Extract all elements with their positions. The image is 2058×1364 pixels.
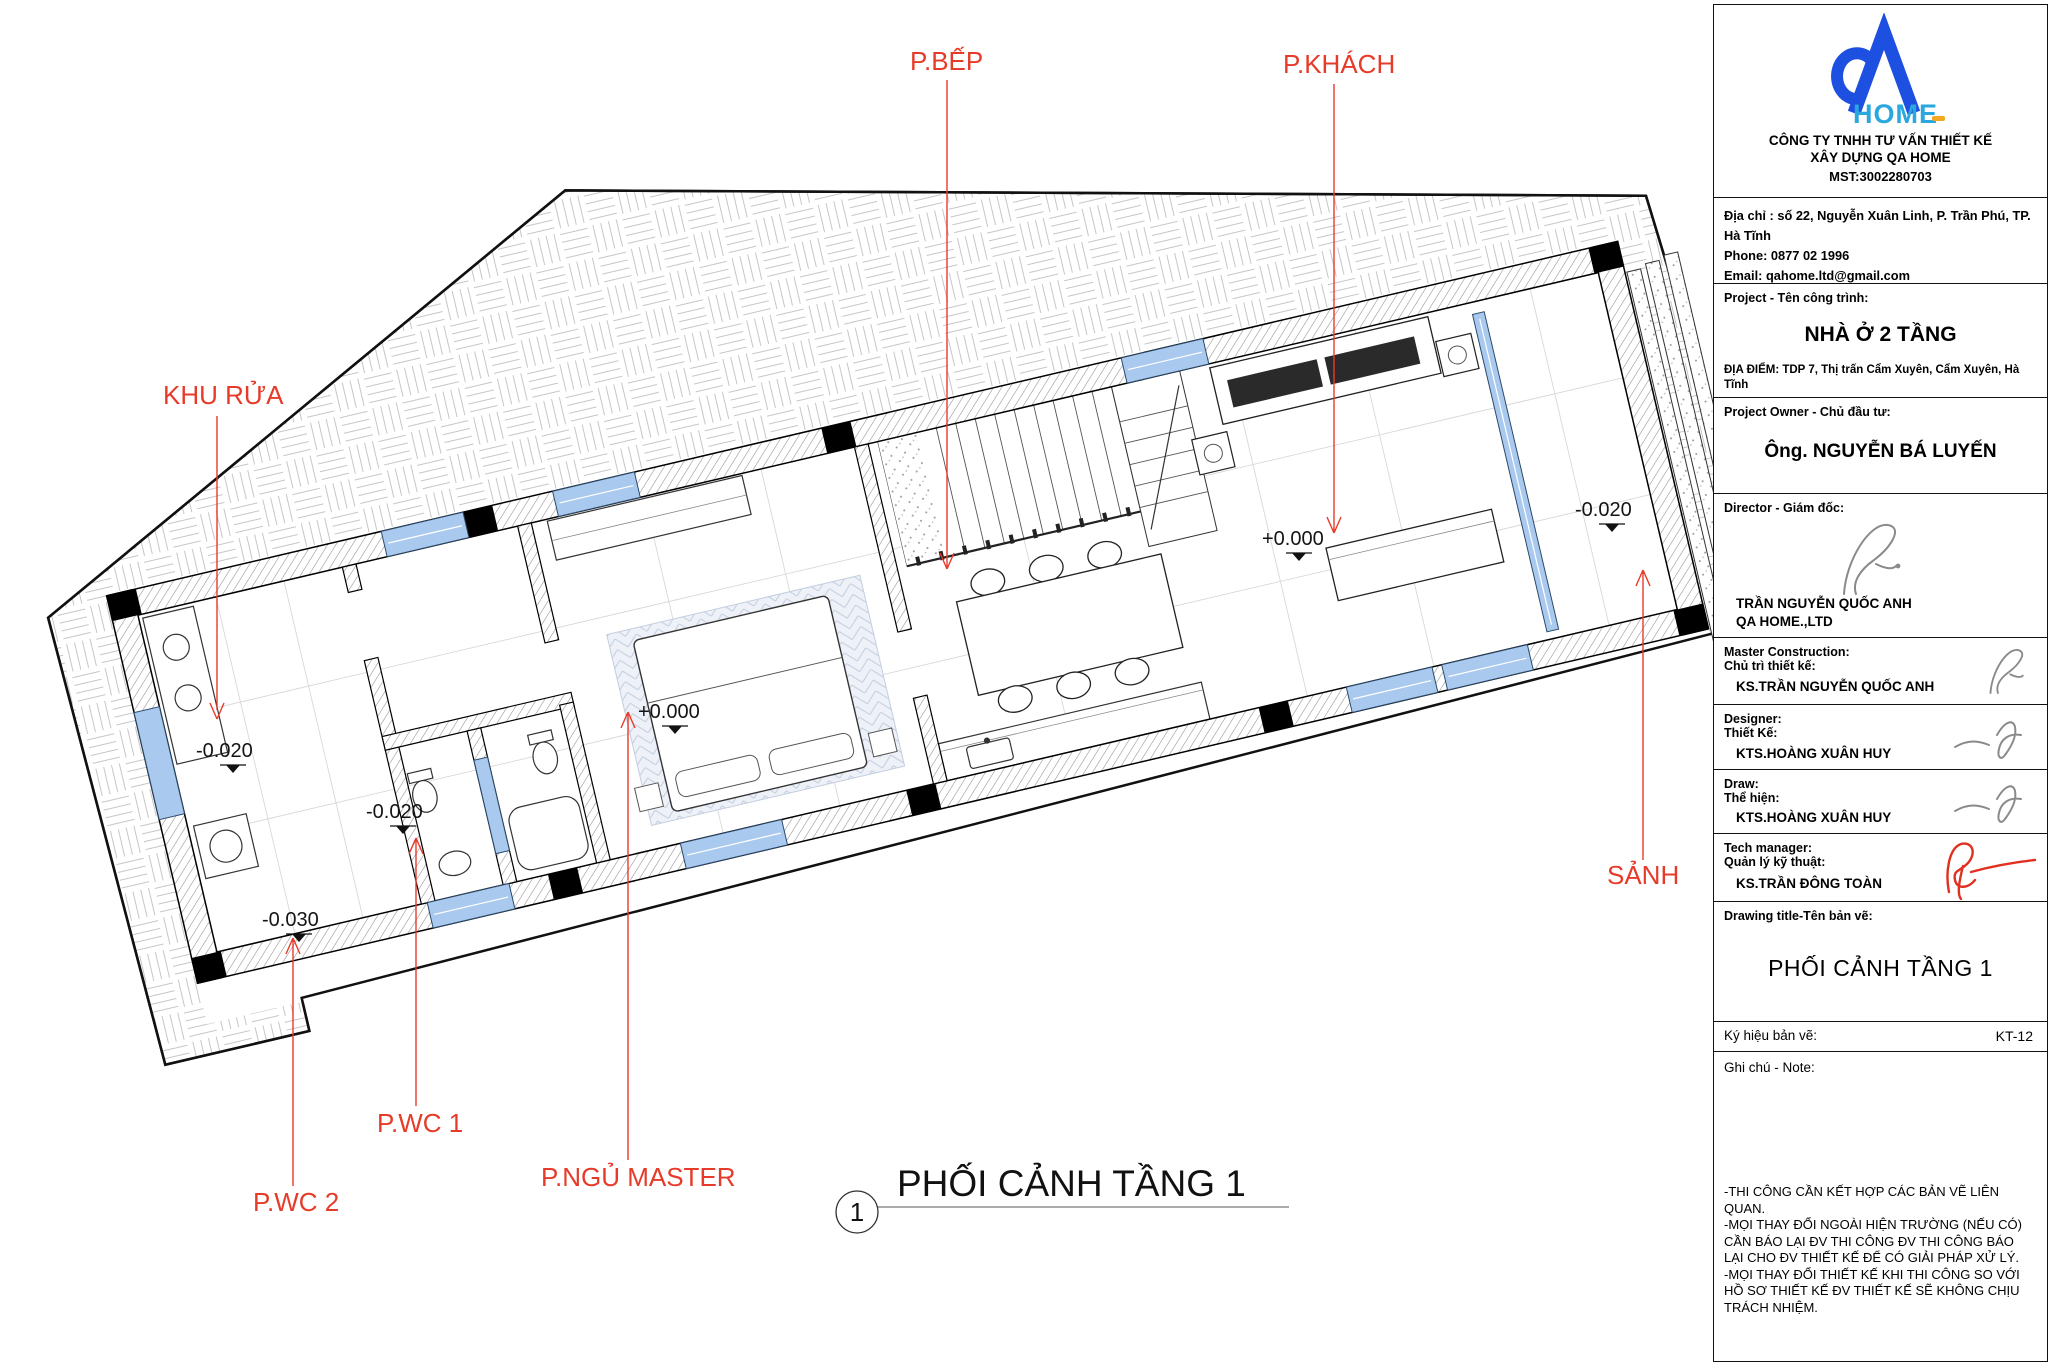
drawing-title-label: Drawing title-Tên bản vẽ: xyxy=(1714,902,2047,923)
room-label-p-bep: P.BẾP xyxy=(910,46,983,76)
draw-section: Draw: Thể hiện: KTS.HOÀNG XUÂN HUY xyxy=(1714,770,2047,834)
room-label-sanh: SẢNH xyxy=(1607,860,1679,890)
company-email: Email: qahome.ltd@gmail.com xyxy=(1724,268,1910,283)
drawing-title: PHỐI CẢNH TẦNG 1 xyxy=(1714,955,2047,982)
room-label-p-wc-2: P.WC 2 xyxy=(253,1187,339,1217)
project-name: NHÀ Ở 2 TẦNG xyxy=(1714,323,2047,347)
director-company: QA HOME.,LTD xyxy=(1714,614,1833,629)
project-section: Project - Tên công trình: NHÀ Ở 2 TẦNG Đ… xyxy=(1714,284,2047,398)
company-name-line1: CÔNG TY TNHH TƯ VẤN THIẾT KẾ xyxy=(1714,132,2047,149)
caption-title: PHỐI CẢNH TẦNG 1 xyxy=(897,1162,1246,1204)
company-name-line2: XÂY DỰNG QA HOME xyxy=(1714,149,2047,166)
notes-label: Ghi chú - Note: xyxy=(1714,1052,2047,1075)
note-item: -THI CÔNG CẦN KẾT HỢP CÁC BẢN VẼ LIÊN QU… xyxy=(1724,1184,2037,1217)
company-phone: Phone: 0877 02 1996 xyxy=(1724,248,1849,263)
director-label: Director - Giám đốc: xyxy=(1714,494,2047,515)
owner-section: Project Owner - Chủ đầu tư: Ông. NGUYỄN … xyxy=(1714,398,2047,494)
floor-plan-drawing: -0.020 -0.020 -0.030 +0.000 +0.000 -0.02… xyxy=(0,0,1713,1364)
level-wc1: -0.020 xyxy=(366,801,423,823)
director-signature xyxy=(1832,516,1922,598)
level-wc2: -0.030 xyxy=(262,909,319,931)
level-porch: -0.020 xyxy=(1575,499,1632,521)
plan-rotated-group xyxy=(0,0,1713,1068)
logo-brush-tick-icon xyxy=(1932,116,1945,121)
room-label-p-ngu-master: P.NGỦ MASTER xyxy=(541,1161,736,1192)
tech-manager-section: Tech manager: Quản lý kỹ thuật: KS.TRẦN … xyxy=(1714,834,2047,902)
master-construction-section: Master Construction: Chủ trì thiết kế: K… xyxy=(1714,638,2047,705)
owner-name: Ông. NGUYỄN BÁ LUYẾN xyxy=(1714,441,2047,463)
tech-signature xyxy=(1923,836,2041,900)
drawing-code: KT-12 xyxy=(1996,1028,2033,1044)
drawing-sheet: -0.020 -0.020 -0.030 +0.000 +0.000 -0.02… xyxy=(0,0,2058,1364)
drawing-code-section: Ký hiệu bản vẽ: KT-12 xyxy=(1714,1022,2047,1052)
project-label: Project - Tên công trình: xyxy=(1714,284,2047,305)
designer-section: Designer: Thiết Kế: KTS.HOÀNG XUÂN HUY xyxy=(1714,705,2047,770)
owner-label: Project Owner - Chủ đầu tư: xyxy=(1714,398,2047,419)
room-label-p-wc-1: P.WC 1 xyxy=(377,1108,463,1138)
drawing-code-label: Ký hiệu bản vẽ: xyxy=(1724,1028,1817,1043)
project-location: ĐỊA ĐIỂM: TDP 7, Thị trấn Cẩm Xuyên, Cẩm… xyxy=(1714,363,2047,393)
drawing-title-section: Drawing title-Tên bản vẽ: PHỐI CẢNH TẦNG… xyxy=(1714,902,2047,1022)
notes-text: -THI CÔNG CẦN KẾT HỢP CÁC BẢN VẼ LIÊN QU… xyxy=(1714,1184,2047,1316)
room-label-p-khach: P.KHÁCH xyxy=(1283,49,1395,79)
level-living: +0.000 xyxy=(1262,528,1324,550)
note-item: -MỌI THAY ĐỔI NGOÀI HIỆN TRƯỜNG (NẾU CÓ)… xyxy=(1724,1217,2037,1267)
qa-home-logo: HOME xyxy=(1806,13,1956,125)
designer-signature xyxy=(1951,713,2037,761)
master-signature xyxy=(1983,640,2039,700)
level-master: +0.000 xyxy=(638,701,700,723)
title-block: HOME CÔNG TY TNHH TƯ VẤN THIẾT KẾ XÂY DỰ… xyxy=(1713,4,2048,1362)
company-address: Địa chỉ : số 22, Nguyễn Xuân Linh, P. Tr… xyxy=(1724,208,2031,243)
company-tax-id: MST:3002280703 xyxy=(1714,169,2047,184)
notes-section: Ghi chú - Note: -THI CÔNG CẦN KẾT HỢP CÁ… xyxy=(1714,1052,2047,1361)
logo-wordmark: HOME xyxy=(1853,99,1938,125)
contact-section: Địa chỉ : số 22, Nguyễn Xuân Linh, P. Tr… xyxy=(1714,198,2047,284)
view-caption: 1 PHỐI CẢNH TẦNG 1 xyxy=(836,1162,1289,1233)
company-section: HOME CÔNG TY TNHH TƯ VẤN THIẾT KẾ XÂY DỰ… xyxy=(1714,5,2047,198)
caption-number: 1 xyxy=(850,1197,864,1227)
director-section: Director - Giám đốc: TRẦN NGUYỄN QUỐC AN… xyxy=(1714,494,2047,638)
level-khu-rua: -0.020 xyxy=(196,740,253,762)
director-name: TRẦN NGUYỄN QUỐC ANH xyxy=(1714,596,1912,611)
room-label-khu-rua: KHU RỬA xyxy=(163,379,284,410)
note-item: -MỌI THAY ĐỔI THIẾT KẾ KHI THI CÔNG SO V… xyxy=(1724,1267,2037,1317)
draw-signature xyxy=(1951,777,2037,825)
